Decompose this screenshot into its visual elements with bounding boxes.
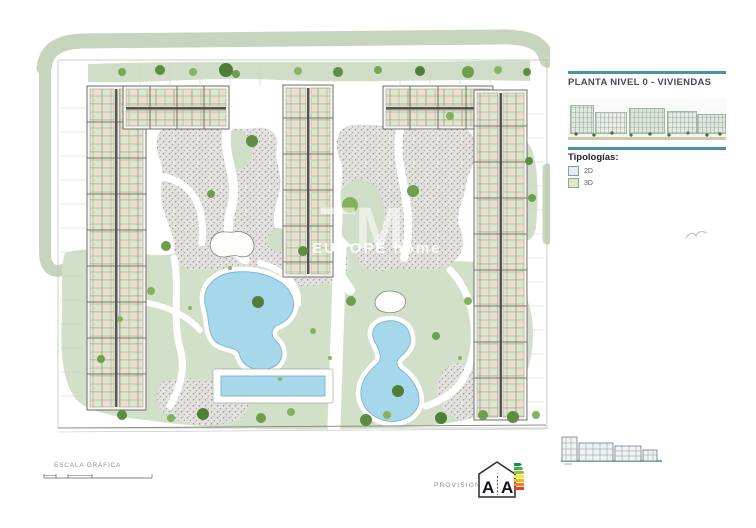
page-title: PLANTA NIVEL 0 - VIVIENDAS xyxy=(568,77,711,88)
legend-item-2d: 2D xyxy=(568,165,593,177)
scale-label: ESCALA GRÁFICA xyxy=(54,462,121,469)
scale-bar xyxy=(42,471,156,483)
bird-sketch-mark xyxy=(684,224,710,246)
legend-label-3d: 3D xyxy=(584,180,593,187)
legend-swatch-2d xyxy=(568,166,579,176)
building-center-wing xyxy=(283,85,333,277)
building-top-left-wing xyxy=(123,86,229,129)
site-plan-drawing xyxy=(30,8,550,468)
legend-swatch-3d xyxy=(568,178,579,188)
building-left-wing xyxy=(87,86,146,410)
building-right-wing xyxy=(474,90,527,420)
sidebar-divider-bottom xyxy=(568,147,726,150)
energy-certificate-badge: A A xyxy=(474,457,524,503)
typologies-legend: 2D 3D xyxy=(568,165,593,189)
energy-arrow-scale xyxy=(514,463,524,490)
render-ground-strip xyxy=(568,137,726,140)
energy-letter-right: A xyxy=(501,478,513,497)
energy-letter-left: A xyxy=(482,478,494,497)
sidebar-divider-top xyxy=(568,71,726,74)
legend-item-3d: 3D xyxy=(568,177,593,189)
legend-label-2d: 2D xyxy=(584,168,593,175)
building-elevation-sketch xyxy=(560,433,664,469)
plan-sheet: TM EUROPE home PLANTA NIVEL 0 - VIVIENDA… xyxy=(0,0,756,528)
project-render-thumbnail xyxy=(568,98,726,140)
pool-lap xyxy=(213,369,333,403)
typologies-heading: Tipologías: xyxy=(568,152,619,163)
